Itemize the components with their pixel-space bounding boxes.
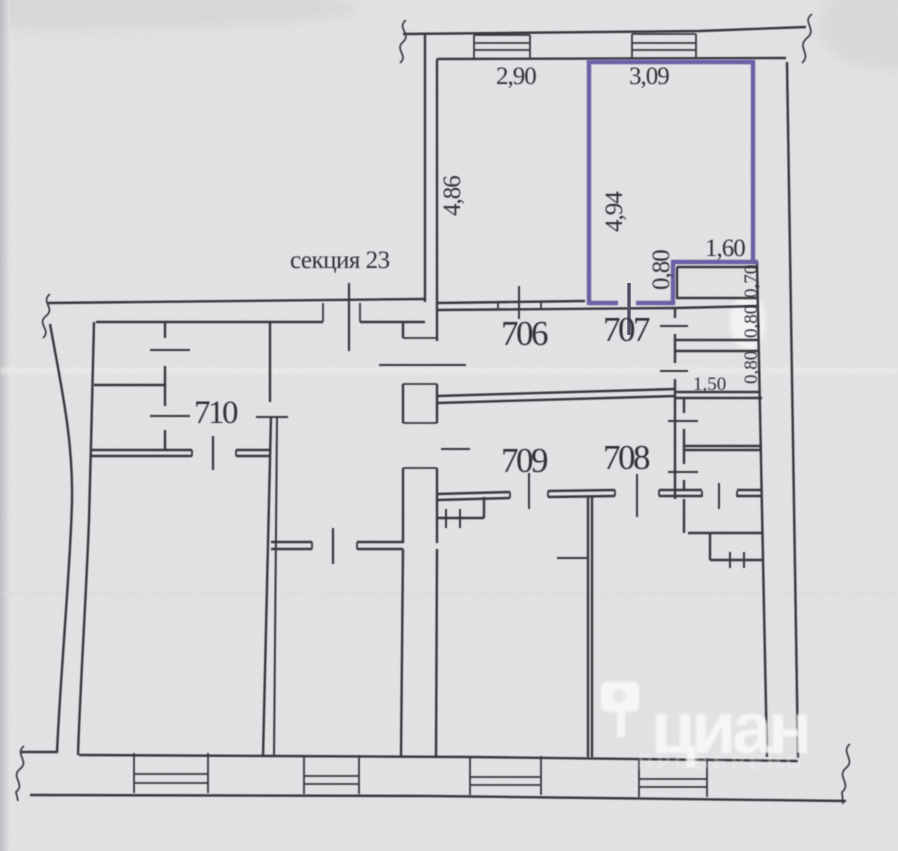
svg-text:ПРОВЕРЕНО: ПРОВЕРЕНО <box>638 752 806 774</box>
